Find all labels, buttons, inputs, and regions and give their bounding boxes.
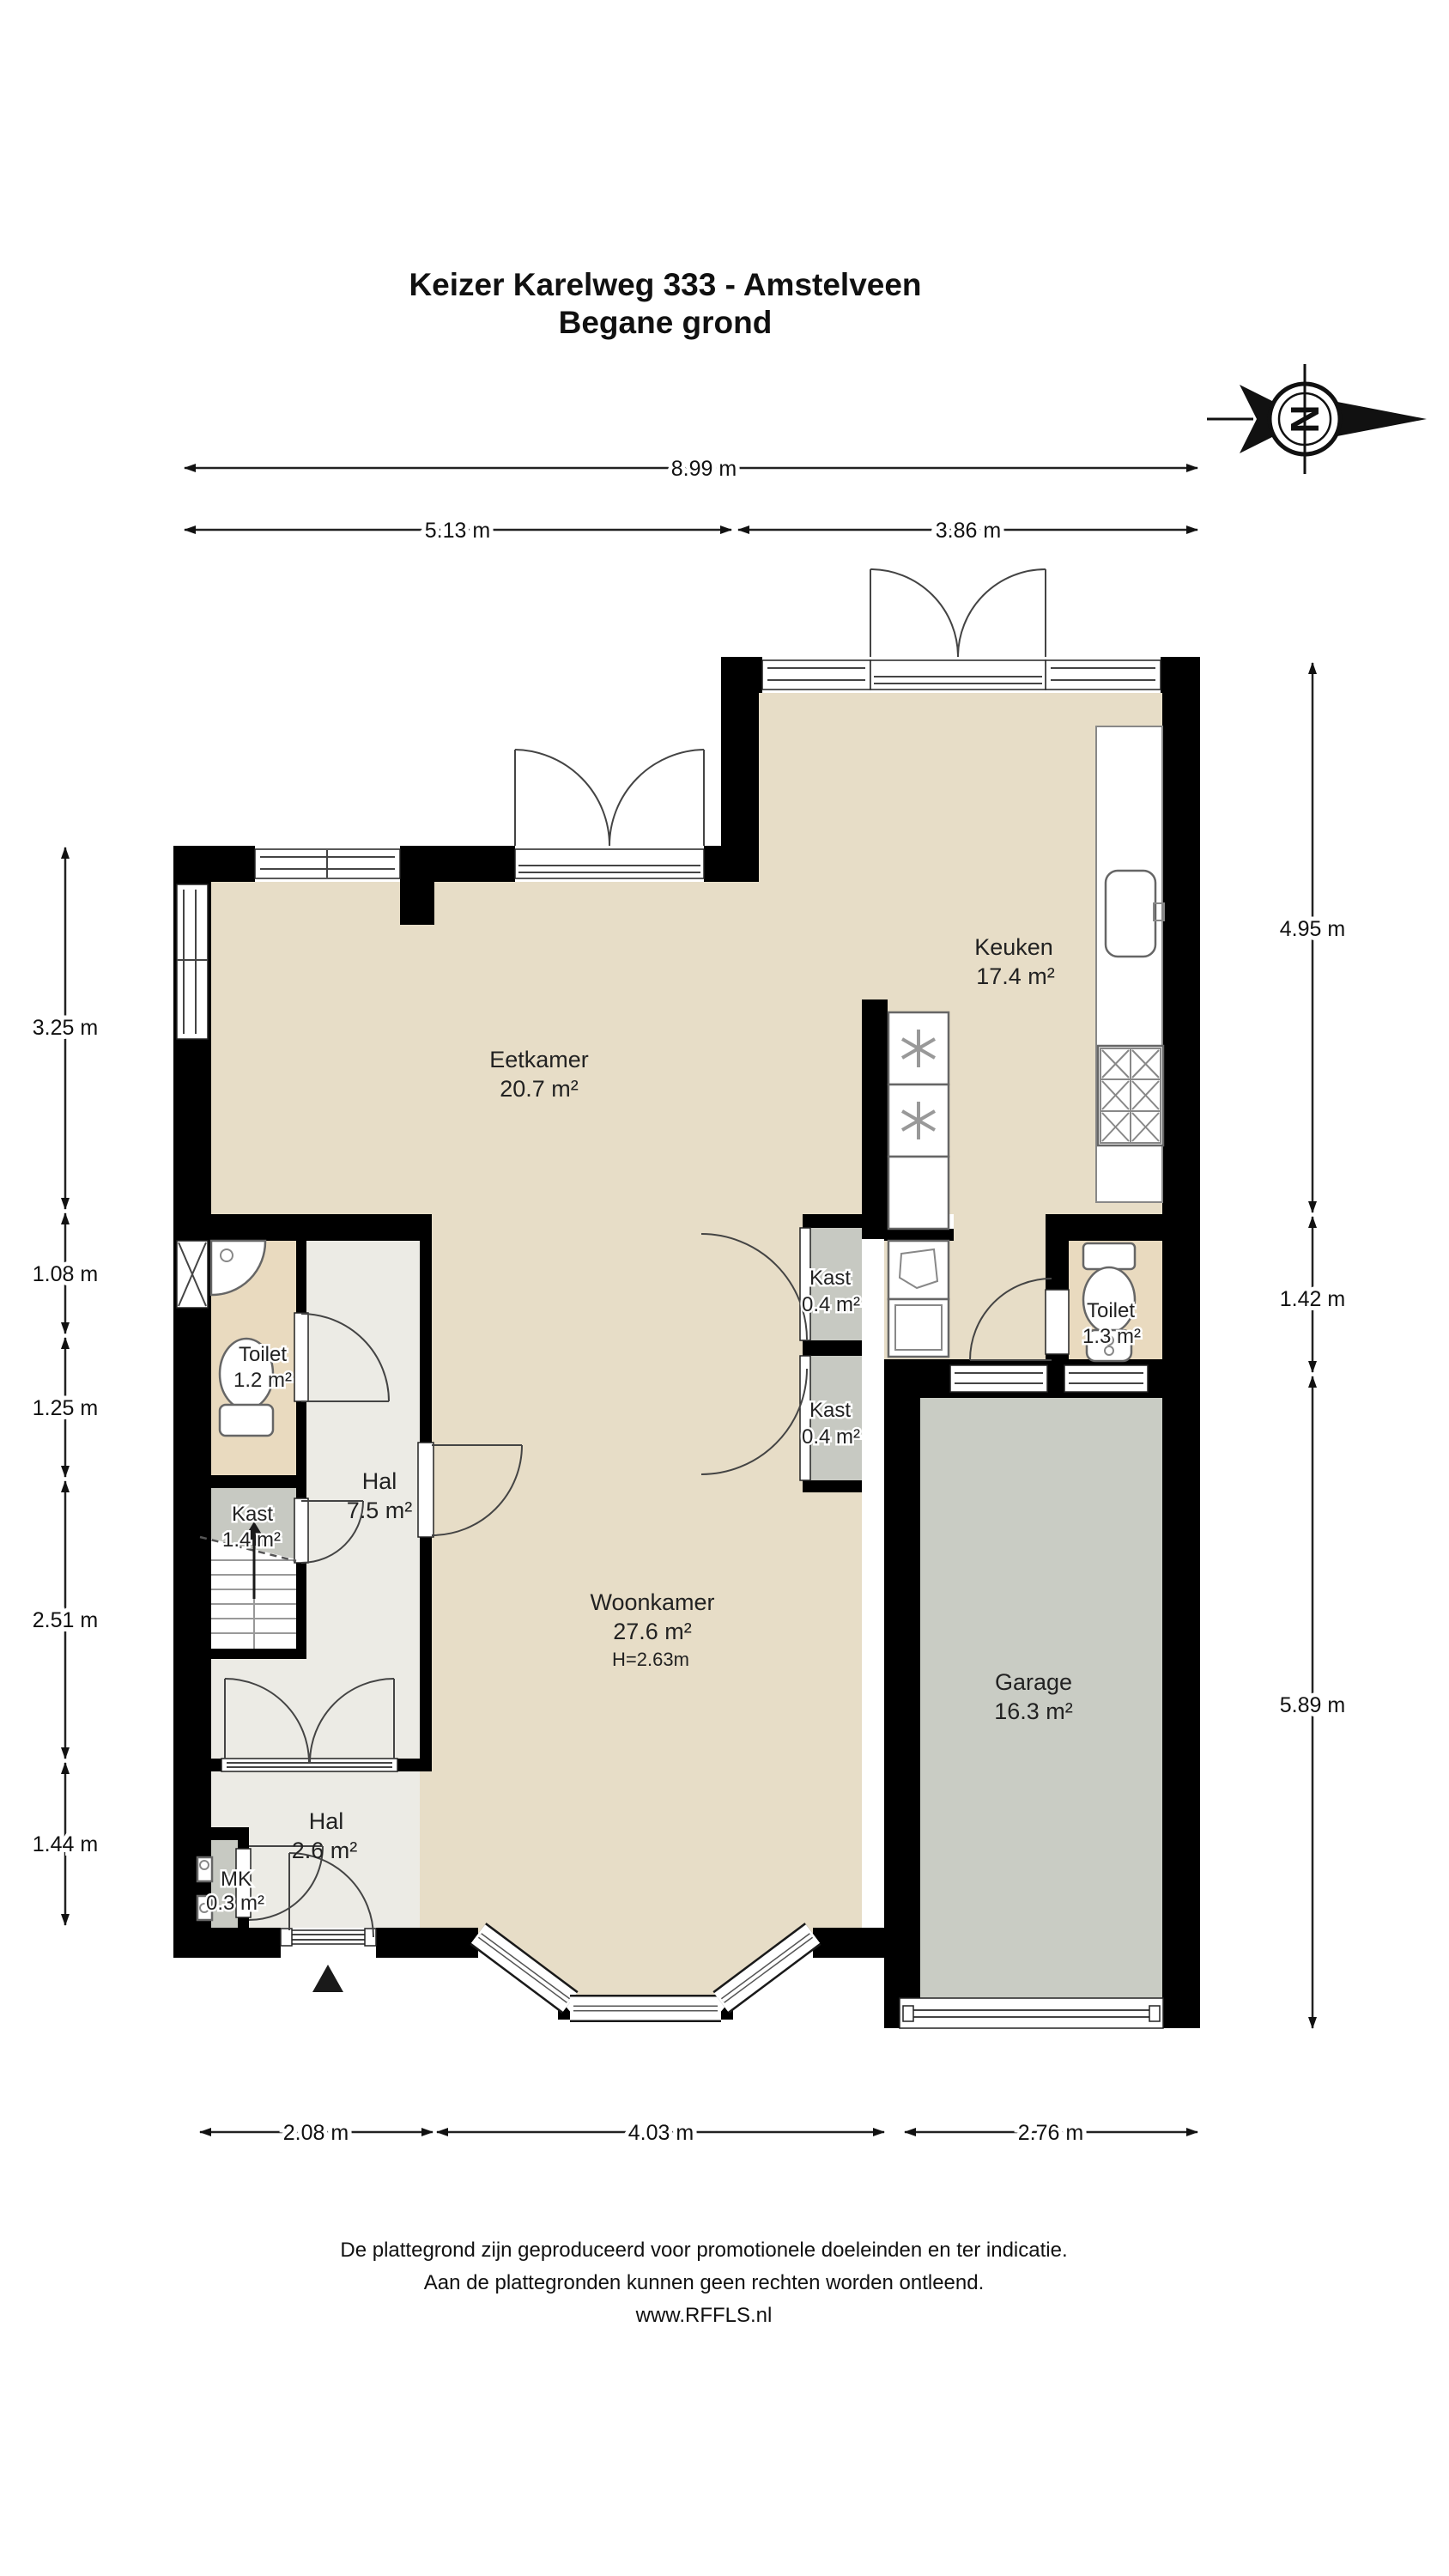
label-toilet-rechts-area: 1.3 m² (1082, 1325, 1141, 1348)
label-kast-onder-area: 0.4 m² (802, 1425, 860, 1449)
toilet-tank-icon (1083, 1243, 1135, 1269)
wall-keuken-top-1 (721, 657, 762, 693)
label-eetkamer-area: 20.7 m² (500, 1076, 579, 1102)
wall-hal-doors-right (397, 1759, 432, 1771)
wall-bottom-1 (173, 1928, 281, 1958)
label-kast-hal: Kast (232, 1503, 273, 1526)
window-toilet-links (177, 1241, 208, 1308)
wall-kast04-mid (803, 1340, 862, 1356)
label-garage: Garage (995, 1669, 1072, 1695)
cabinet-icon (888, 1157, 949, 1229)
window-eetkamer-side (177, 884, 208, 1039)
wall-pillar (400, 882, 434, 925)
wall-toilet-r-left-1 (1046, 1241, 1069, 1290)
wall-mk-top (200, 1827, 249, 1840)
compass-north-icon: N (1207, 364, 1427, 474)
label-entree: Hal (309, 1808, 344, 1834)
label-entree-area: 2.6 m² (292, 1838, 358, 1863)
label-garage-area: 16.3 m² (994, 1698, 1073, 1724)
wall-right-outer (1162, 657, 1200, 2028)
floor-passage (954, 1214, 1046, 1359)
wall-kast-right-1 (296, 1488, 306, 1498)
footer-line1: De plattegrond zijn geproduceerd voor pr… (340, 2239, 1067, 2262)
wall-eetkamer-top-1 (173, 846, 255, 882)
wall-mk-right-1 (238, 1840, 249, 1849)
dim-top-total: 8.99 m (671, 457, 737, 481)
label-meterkast: MK (221, 1868, 252, 1891)
wall-kast04-bottom (803, 1480, 862, 1492)
label-kast-boven-area: 0.4 m² (802, 1293, 860, 1316)
label-toilet-rechts: Toilet (1087, 1299, 1135, 1322)
wall-bottom-2 (376, 1928, 478, 1958)
label-woonkamer-height: H=2.63m (612, 1649, 689, 1670)
label-kast-hal-area: 1.4 m² (222, 1528, 281, 1552)
wall-garage-left (884, 1359, 920, 1998)
wall-mk-right-2 (238, 1917, 249, 1928)
label-woonkamer: Woonkamer (590, 1589, 714, 1615)
dim-top-right: 3.86 m (936, 519, 1001, 543)
dim-left-3: 1.25 m (33, 1396, 98, 1420)
toilet-tank-icon (220, 1405, 273, 1436)
header: Keizer Karelweg 333 - Amstelveen Begane … (409, 267, 921, 340)
window-keuken-left (762, 660, 870, 690)
floorplan-canvas: Eetkamer 20.7 m² Keuken 17.4 m² Woonkame… (0, 0, 1449, 2576)
footer-line2: Aan de plattegronden kunnen geen rechten… (424, 2271, 985, 2294)
dishwasher-icon (888, 1299, 949, 1357)
label-hal: Hal (362, 1468, 397, 1494)
label-keuken-area: 17.4 m² (976, 963, 1055, 989)
wall-hal-eetkamer-2 (420, 1537, 432, 1771)
dim-bottom-2: 4.03 m (628, 2121, 694, 2145)
label-toilet-links: Toilet (239, 1343, 287, 1366)
floorplan-page: Eetkamer 20.7 m² Keuken 17.4 m² Woonkame… (0, 0, 1449, 2576)
dim-left-4: 2.51 m (33, 1608, 98, 1632)
wall-bottom-3 (813, 1928, 884, 1958)
dim-bottom-1: 2.08 m (283, 2121, 349, 2145)
dim-right-2: 1.42 m (1280, 1287, 1345, 1311)
window-garage-2 (1064, 1365, 1148, 1392)
window-keuken-right (1046, 660, 1161, 690)
wall-garage-corner (884, 1998, 901, 2028)
wall-hal-top (173, 1214, 432, 1241)
wall-toilet-l-right-2 (296, 1401, 306, 1488)
kitchen-sink-icon (1106, 871, 1164, 957)
compass-letter: N (1282, 404, 1327, 433)
wall-toilet-l-right-1 (296, 1241, 306, 1313)
floors (211, 693, 1162, 2002)
window-eetkamer-top (255, 849, 400, 878)
dim-left-5: 1.44 m (33, 1832, 98, 1856)
floor-hal-lower (211, 1659, 420, 1759)
label-kast-boven: Kast (809, 1267, 851, 1290)
dim-right-1: 4.95 m (1280, 917, 1345, 941)
dim-bottom-3: 2.76 m (1018, 2121, 1083, 2145)
footer: De plattegrond zijn geproduceerd voor pr… (340, 2239, 1067, 2327)
footer-website: www.RFFLS.nl (635, 2304, 773, 2327)
page-title-line2: Begane grond (559, 305, 773, 340)
sink-cabinet-icon (888, 1241, 949, 1299)
wall-hal-eetkamer-1 (420, 1241, 432, 1443)
label-meterkast-area: 0.3 m² (206, 1892, 264, 1915)
door-eetkamer-garden (515, 750, 704, 878)
wall-toilet-r-top (1046, 1214, 1162, 1241)
wall-kast-right-2 (296, 1563, 306, 1659)
door-keuken-garden (870, 569, 1046, 690)
wall-stub-passage (884, 1229, 954, 1241)
label-toilet-links-area: 1.2 m² (233, 1369, 292, 1392)
label-eetkamer: Eetkamer (489, 1047, 589, 1072)
entrance-triangle-icon (312, 1965, 343, 1992)
label-keuken: Keuken (974, 934, 1053, 960)
window-garage-1 (950, 1365, 1047, 1392)
dim-left-1: 3.25 m (33, 1016, 98, 1040)
dim-left-2: 1.08 m (33, 1262, 98, 1286)
label-woonkamer-area: 27.6 m² (613, 1619, 692, 1644)
stove-icon (1098, 1046, 1163, 1145)
wall-stairs-bottom (200, 1649, 306, 1659)
wall-toilet-l-bottom (173, 1475, 306, 1488)
label-hal-area: 7.5 m² (347, 1498, 413, 1523)
wall-kast04-top (803, 1214, 862, 1228)
page-title-line1: Keizer Karelweg 333 - Amstelveen (409, 267, 921, 302)
label-kast-onder: Kast (809, 1399, 851, 1422)
dim-top-left: 5.13 m (425, 519, 490, 543)
dim-right-3: 5.89 m (1280, 1693, 1345, 1717)
appliance-column (888, 1012, 949, 1357)
wall-hal-doors-left (200, 1759, 221, 1771)
garage-door (900, 1998, 1163, 2028)
wall-eetkamer-top-2 (400, 846, 515, 882)
wall-keuken-divider (862, 999, 888, 1239)
